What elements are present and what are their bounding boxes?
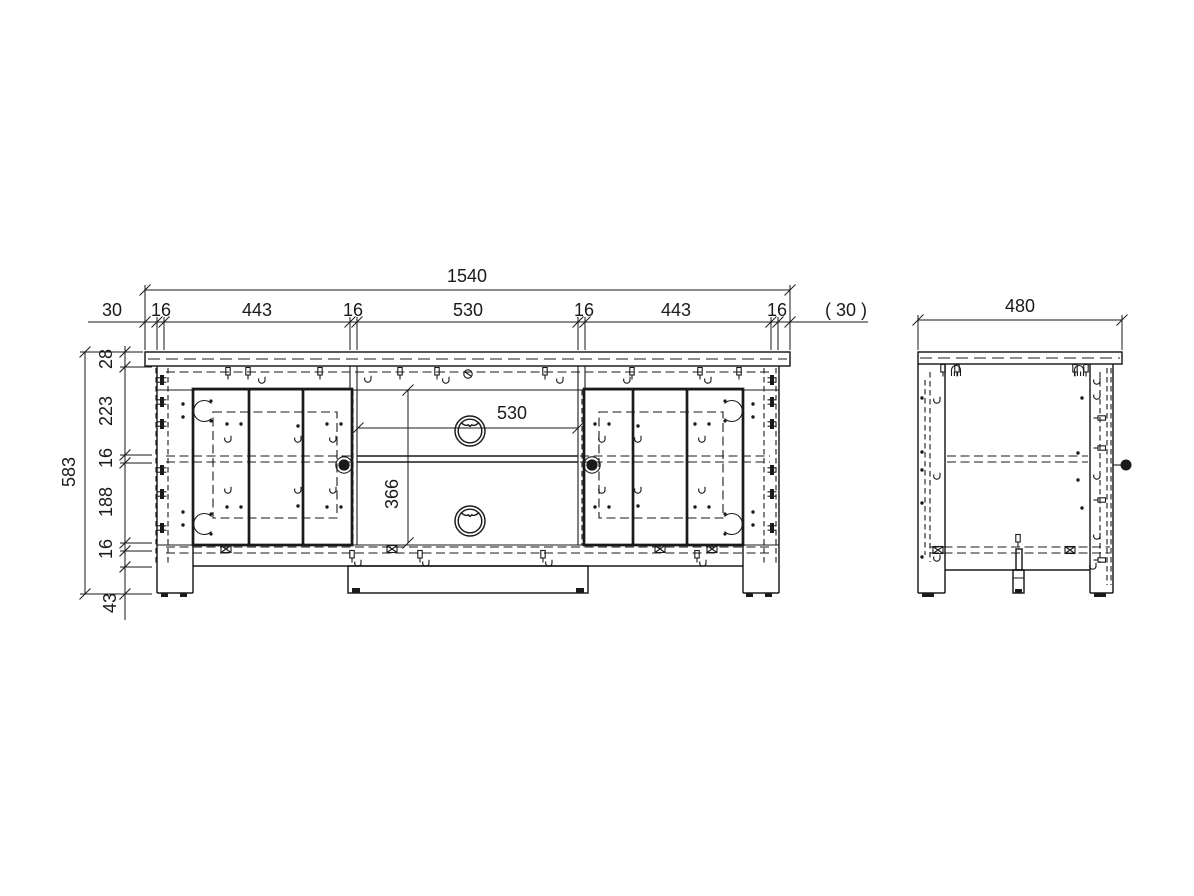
dim-seg-center: 530 [453, 300, 483, 320]
side-view: 480 [913, 296, 1132, 597]
side-door-knob [1113, 460, 1132, 471]
front-center-compartment: 530 366 [353, 385, 584, 549]
hinge-icon [194, 512, 213, 535]
cable-grommet-lower [455, 506, 485, 536]
dim-seg-top: 28 [96, 349, 116, 369]
front-dim-opening-width: 530 [353, 403, 584, 434]
foot-pad [1094, 593, 1106, 597]
screw-icon [464, 370, 472, 378]
dim-seg-panel-right: 16 [767, 300, 787, 320]
foot-pad [1015, 589, 1022, 593]
dim-total-width: 1540 [447, 266, 487, 286]
dim-seg-leg: 43 [100, 593, 120, 613]
dim-door-height: 366 [382, 479, 402, 509]
front-right-door [584, 389, 755, 545]
dim-opening-width: 530 [497, 403, 527, 423]
side-dim-depth: 480 [913, 296, 1128, 350]
hinge-icon [723, 399, 742, 422]
dim-seg-panel-left: 16 [151, 300, 171, 320]
front-dim-top: 1540 30 16 443 16 530 16 443 16 ( 30 ) [88, 266, 868, 350]
dim-seg-partition-right: 16 [574, 300, 594, 320]
front-left-door [181, 389, 352, 545]
cable-grommet-upper [455, 416, 485, 446]
hinge-icon [723, 512, 742, 535]
dim-seg-lower-opening: 188 [96, 487, 116, 517]
side-hardware [920, 365, 1105, 570]
dim-total-height: 583 [59, 457, 79, 487]
dim-seg-shelf: 16 [96, 448, 116, 468]
side-middle-foot [1013, 549, 1024, 593]
dim-seg-overhang-right: ( 30 ) [825, 300, 867, 320]
front-dim-door-height: 366 [382, 385, 414, 549]
dim-seg-bottom-panel: 16 [96, 539, 116, 559]
dim-seg-upper-opening: 223 [96, 396, 116, 426]
dim-seg-door-left: 443 [242, 300, 272, 320]
center-plinth [348, 566, 588, 593]
hinge-icon [194, 399, 213, 422]
dim-total-depth: 480 [1005, 296, 1035, 316]
technical-drawing: 1540 30 16 443 16 530 16 443 16 ( 30 ) [0, 0, 1194, 896]
door-knob [584, 457, 600, 473]
side-body [918, 352, 1122, 593]
front-dim-left: 583 28 223 16 188 16 43 [59, 346, 152, 620]
dim-seg-partition-left: 16 [343, 300, 363, 320]
door-knob [336, 457, 352, 473]
side-hidden-lines [925, 368, 1111, 585]
dim-seg-overhang-left: 30 [102, 300, 122, 320]
foot-pad [922, 593, 934, 597]
dim-seg-door-right: 443 [661, 300, 691, 320]
front-view: 1540 30 16 443 16 530 16 443 16 ( 30 ) [59, 266, 868, 620]
